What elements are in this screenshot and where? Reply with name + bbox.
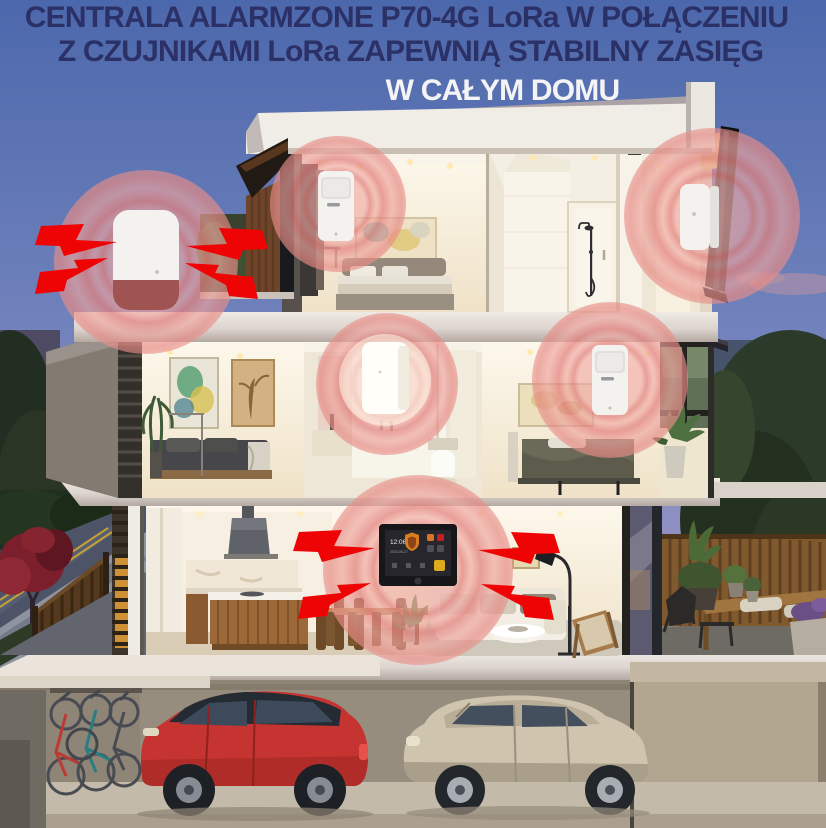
svg-text:12:06: 12:06 — [390, 539, 407, 546]
svg-text:2023-06-27: 2023-06-27 — [390, 550, 408, 554]
